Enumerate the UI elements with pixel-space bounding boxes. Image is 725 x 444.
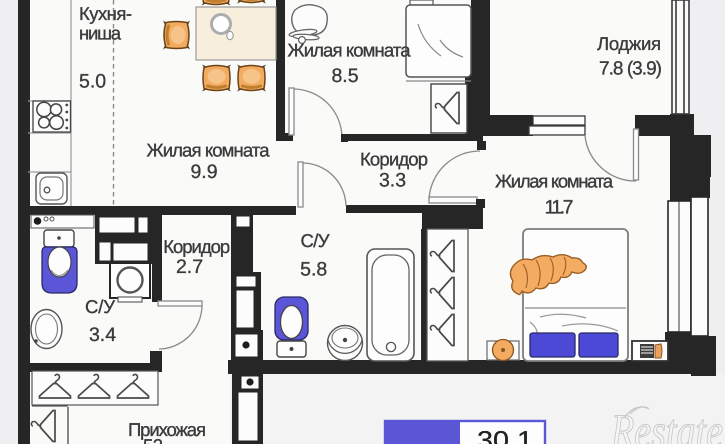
svg-text:3.3: 3.3 <box>379 170 406 192</box>
svg-text:5.0: 5.0 <box>79 71 106 93</box>
svg-text:9.9: 9.9 <box>190 161 217 183</box>
svg-text:Коридор: Коридор <box>163 236 230 257</box>
svg-text:7.8 (3.9): 7.8 (3.9) <box>599 59 662 80</box>
svg-text:ниша: ниша <box>79 23 122 44</box>
svg-text:Жилая комната: Жилая комната <box>147 140 271 161</box>
svg-text:Restate: Restate <box>610 405 723 444</box>
svg-text:С/У: С/У <box>301 230 330 251</box>
svg-text:8.5: 8.5 <box>331 65 358 87</box>
svg-text:3.4: 3.4 <box>89 324 116 346</box>
svg-text:С/У: С/У <box>85 296 115 317</box>
svg-text:Коридор: Коридор <box>360 149 428 170</box>
svg-text:11.7: 11.7 <box>545 197 574 219</box>
svg-text:5.8: 5.8 <box>300 259 327 281</box>
svg-text:Прихожая: Прихожая <box>128 419 206 440</box>
svg-text:30.1: 30.1 <box>477 427 533 444</box>
svg-text:Лоджия: Лоджия <box>597 33 661 54</box>
svg-text:Жилая комната: Жилая комната <box>288 40 412 61</box>
svg-text:Кухня-: Кухня- <box>79 3 132 24</box>
svg-text:5.2: 5.2 <box>143 435 163 444</box>
svg-text:2.7: 2.7 <box>176 256 203 278</box>
svg-text:Жилая комната: Жилая комната <box>495 171 614 192</box>
